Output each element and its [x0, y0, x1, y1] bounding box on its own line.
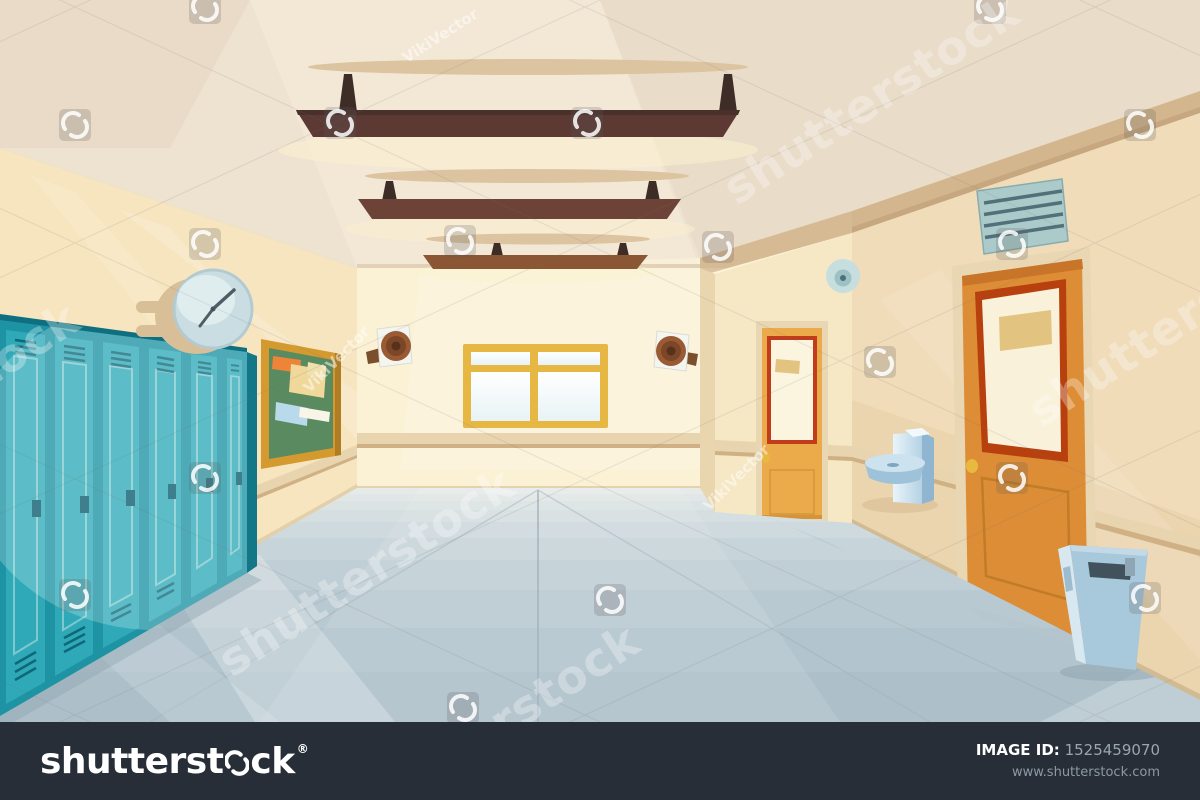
footer-bar: shutterstck® IMAGE ID: 1525459070 www.sh… [0, 722, 1200, 800]
watermark-layer: shutterstockshutterstockshutterstockshut… [0, 0, 1200, 722]
watermark-logo-mark [444, 225, 476, 257]
shutterstock-logo-mark-icon [225, 749, 249, 777]
watermark-logo-mark [59, 579, 91, 611]
watermark-logo-mark [996, 228, 1028, 260]
stock-image-page: shutterstockshutterstockshutterstockshut… [0, 0, 1200, 800]
image-id-value: 1525459070 [1065, 741, 1160, 759]
registered-mark: ® [297, 742, 309, 756]
shutterstock-logo: shutterstck® [40, 741, 308, 782]
watermark-logo-mark [189, 228, 221, 260]
image-id-label: IMAGE ID: [976, 741, 1060, 759]
image-meta: IMAGE ID: 1525459070 www.shutterstock.co… [976, 739, 1160, 782]
watermark-logo-mark [1129, 582, 1161, 614]
logo-text-part1: shutterst [40, 741, 223, 782]
hallway-illustration: shutterstockshutterstockshutterstockshut… [0, 0, 1200, 722]
watermark-logo-mark [594, 584, 626, 616]
watermark-logo-mark [59, 109, 91, 141]
watermark-logo-mark [189, 0, 221, 24]
watermark-logo-mark [702, 231, 734, 263]
watermark-logo-mark [571, 107, 603, 139]
watermark-logo-mark [324, 107, 356, 139]
logo-text-part2: ck [250, 741, 294, 782]
watermark-logo-mark [864, 346, 896, 378]
watermark-logo-mark [996, 462, 1028, 494]
website-url: www.shutterstock.com [976, 763, 1160, 783]
watermark-logo-mark [1124, 109, 1156, 141]
watermark-logo-mark [189, 462, 221, 494]
